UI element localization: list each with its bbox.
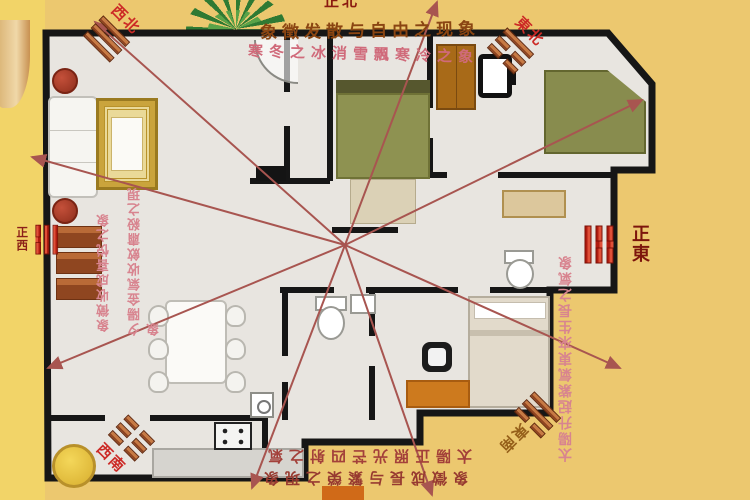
bed-foot [350,179,416,224]
curtain-decor [0,20,30,108]
marker-east: 正東 [580,224,652,264]
direction-label-west: 正西 [14,226,30,253]
black-cabinet [256,166,286,181]
trigram-zhen-icon [585,225,614,263]
west-annotation-long: 夕陽金氣收斂肅殺之現象 [126,186,164,336]
trigram-dui-icon [35,224,58,254]
dining-chair [148,338,169,360]
dining-chair [225,371,246,393]
toilet [317,306,345,340]
bed-green [336,93,430,179]
north-banner-line1: 象徵发散与自由之现象 [260,14,520,44]
bed-headboard [336,80,430,93]
round-yellow-table [52,444,96,488]
dining-chair [225,305,246,327]
dining-chair [148,371,169,393]
white-sofa [48,96,98,198]
south-annotation-line2: 象徵成長与繁榮之現象 [258,468,468,489]
dining-chair [225,338,246,360]
fengshui-floorplan: 西北 正北 東北 正東 正西 [0,0,750,500]
round-stool [52,68,78,94]
marker-northwest: 西北 [83,0,147,63]
east-annotation: 太陽升起紫氣東來生長之氣象 [556,172,576,462]
stove [214,422,252,450]
orange-rug [406,380,470,408]
armchair-black [422,342,452,372]
ornate-rug [96,98,158,190]
west-annotation-short: 象徵收成喜悦之象 [95,200,114,332]
dining-table [165,300,227,384]
direction-label-east: 正東 [626,224,652,264]
round-stool [52,198,78,224]
south-annotation-line1: 太陽正照光芒四射之氣 [262,446,472,467]
direction-label-north: 正北 [324,0,360,11]
sink [350,294,376,314]
toilet [506,259,534,289]
bed-bottom-right [468,296,550,408]
washing-machine [250,392,274,418]
bed-green-corner [544,70,646,154]
marker-west: 正西 [14,226,62,253]
